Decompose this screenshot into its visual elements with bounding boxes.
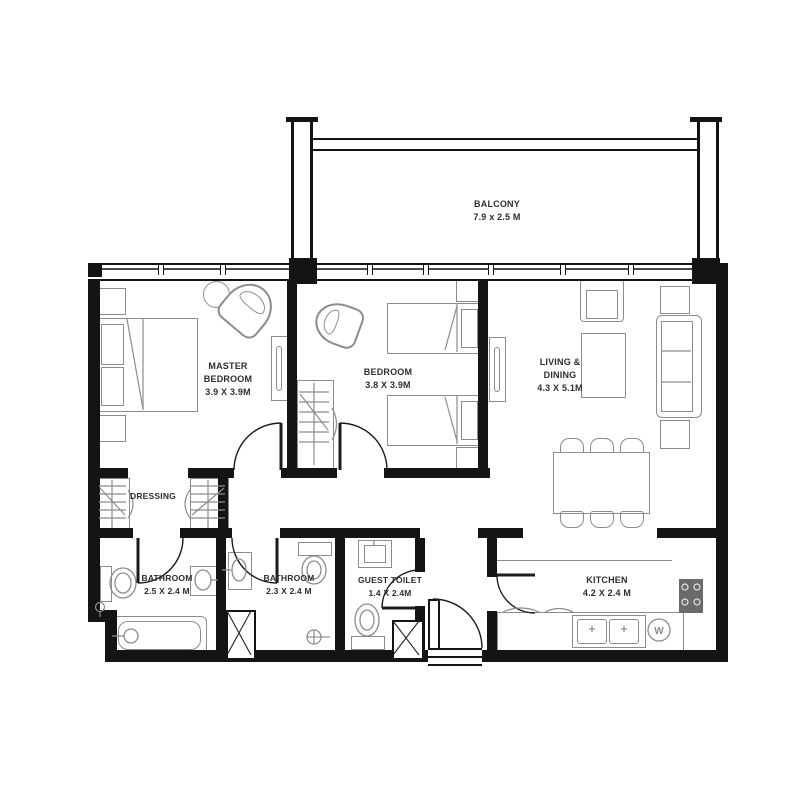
dining-table <box>553 452 650 514</box>
room-name: DRESSING <box>130 490 176 503</box>
stove <box>679 579 703 613</box>
room-name: BEDROOM <box>204 373 252 386</box>
wall-guest-divider <box>335 538 345 660</box>
wall-bottom-west <box>105 650 428 662</box>
nightstand <box>97 415 126 442</box>
window-mullion <box>488 265 494 275</box>
room-dims: 3.9 X 3.9M <box>204 386 252 399</box>
master-bedroom-door <box>234 423 281 470</box>
balcony-cap-left <box>286 117 318 122</box>
living-dining-label: LIVING & DINING 4.3 X 5.1M <box>537 356 583 395</box>
window-corner-left <box>88 263 102 277</box>
kitchen-door <box>497 575 535 613</box>
wall-bedroom-living-divider <box>478 272 488 478</box>
entrance-threshold <box>428 648 482 666</box>
bedroom-wardrobe <box>297 380 334 470</box>
room-name: GUEST TOILET <box>358 574 422 587</box>
dining-chair <box>620 511 644 528</box>
wall-kitchen-top-b <box>657 528 716 538</box>
armchair-seat <box>586 290 618 319</box>
bathroom-sink <box>190 566 218 596</box>
room-dims: 4.3 X 5.1M <box>537 382 583 395</box>
guest-toilet-label: GUEST TOILET 1.4 X 2.4M <box>358 574 422 600</box>
pillow <box>461 309 478 348</box>
wall-right <box>716 263 728 662</box>
window-mullion <box>220 265 226 275</box>
balcony-column-right <box>692 258 720 284</box>
guest-sink-basin <box>364 545 386 563</box>
room-name: KITCHEN <box>583 574 631 587</box>
room-dims: 1.4 X 2.4M <box>358 587 422 600</box>
mirror-handle <box>494 347 500 392</box>
balcony-label: BALCONY 7.9 x 2.5 M <box>473 198 520 224</box>
room-name: LIVING & <box>537 356 583 369</box>
mirror-handle <box>276 346 282 391</box>
dressing-wardrobe-left <box>97 478 130 532</box>
armchair <box>309 296 367 351</box>
window-wall <box>88 263 716 281</box>
room-name: BATHROOM <box>141 572 192 585</box>
toilet-tank <box>100 566 112 602</box>
side-table <box>660 286 690 314</box>
room-name: BALCONY <box>473 198 520 211</box>
pillow <box>461 401 478 440</box>
nightstand <box>97 288 126 315</box>
room-dims: 3.8 X 3.9M <box>364 379 412 392</box>
room-dims: 2.3 X 2.4 M <box>263 585 314 598</box>
window-mullion <box>560 265 566 275</box>
entrance-door-leaf <box>428 599 440 652</box>
entrance-door-arc <box>433 599 482 648</box>
balcony-wall-left <box>291 120 313 265</box>
toilet-tank <box>351 636 385 650</box>
wall-master-bedroom-divider <box>287 272 297 470</box>
wall-mid-d <box>384 468 490 478</box>
kitchen-sink-left <box>577 619 607 644</box>
toilet-tank <box>298 542 332 556</box>
duct-shaft <box>226 610 256 660</box>
window-mullion <box>423 265 429 275</box>
room-name: MASTER <box>204 360 252 373</box>
window-glass-line <box>88 268 716 270</box>
window-mullion <box>628 265 634 275</box>
bedroom-door <box>340 423 387 470</box>
balcony-wall-right <box>697 120 719 265</box>
master-bathroom-label: BATHROOM 2.5 X 2.4 M <box>141 572 192 598</box>
wall-dressing-right <box>218 470 228 528</box>
wall-bottom-east <box>482 650 728 662</box>
bathtub-inner <box>118 621 201 650</box>
wall-guest-right-upper <box>415 538 425 572</box>
pillow <box>101 367 124 406</box>
shared-bathroom-label: BATHROOM 2.3 X 2.4 M <box>263 572 314 598</box>
wall-mid-a <box>95 468 128 478</box>
wall-bath-top-a <box>88 528 133 538</box>
room-name: BEDROOM <box>364 366 412 379</box>
side-table <box>660 420 690 449</box>
floor-plan: W BALCONY 7.9 x 2.5 M MASTER BEDROOM 3.9… <box>0 0 800 800</box>
window-mullion <box>367 265 373 275</box>
wall-kitchen-left-upper <box>487 538 497 577</box>
dining-chair <box>590 511 614 528</box>
wall-kitchen-top-a <box>478 528 523 538</box>
wall-bath-divider <box>216 538 226 660</box>
bathroom-sink <box>228 552 252 590</box>
wall-bath-top-c <box>280 528 420 538</box>
wall-left <box>88 263 100 620</box>
room-name: BATHROOM <box>263 572 314 585</box>
balcony-cap-right <box>690 117 722 122</box>
kitchen-label: KITCHEN 4.2 X 2.4 M <box>583 574 631 600</box>
kitchen-pass-counter <box>497 560 672 562</box>
bedroom-label: BEDROOM 3.8 X 3.9M <box>364 366 412 392</box>
dressing-label: DRESSING <box>130 490 176 503</box>
room-name: DINING <box>537 369 583 382</box>
room-dims: 2.5 X 2.4 M <box>141 585 192 598</box>
room-dims: 4.2 X 2.4 M <box>583 587 631 600</box>
balcony-column-left <box>289 258 317 284</box>
coffee-table <box>581 333 626 398</box>
balcony-railing <box>313 138 697 151</box>
kitchen-sink-right <box>609 619 639 644</box>
room-dims: 7.9 x 2.5 M <box>473 211 520 224</box>
duct-shaft <box>392 620 424 660</box>
window-mullion <box>158 265 164 275</box>
master-bedroom-label: MASTER BEDROOM 3.9 X 3.9M <box>204 360 252 399</box>
wall-bath-top-b <box>180 528 232 538</box>
wall-kitchen-left-lower <box>487 611 497 650</box>
pillow <box>101 324 124 365</box>
dining-chair <box>560 511 584 528</box>
sofa-seat <box>661 321 693 412</box>
